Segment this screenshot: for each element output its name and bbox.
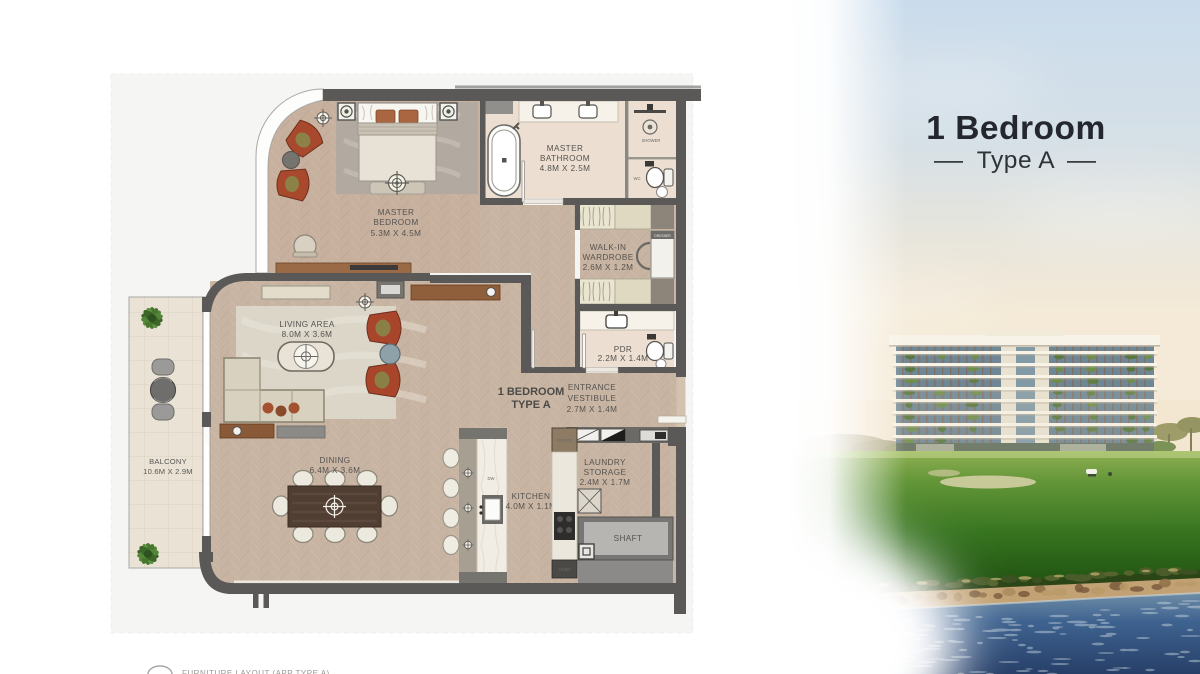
- svg-text:DW: DW: [488, 476, 495, 481]
- svg-text:STORAGE: STORAGE: [584, 468, 627, 477]
- svg-text:2.4M X 1.7M: 2.4M X 1.7M: [580, 478, 631, 487]
- svg-text:BEDROOM: BEDROOM: [373, 218, 418, 227]
- svg-text:4.0M X 1.1M: 4.0M X 1.1M: [506, 502, 557, 511]
- svg-text:4.8M X 2.5M: 4.8M X 2.5M: [540, 164, 591, 173]
- svg-text:WC: WC: [634, 176, 641, 181]
- svg-text:6.4M X 3.6M: 6.4M X 3.6M: [310, 466, 361, 475]
- svg-text:10.6M X 2.9M: 10.6M X 2.9M: [143, 467, 193, 476]
- svg-text:FRIDGE: FRIDGE: [557, 438, 573, 443]
- svg-text:MASTER: MASTER: [547, 144, 584, 153]
- svg-text:1 Bedroom: 1 Bedroom: [926, 110, 1105, 147]
- svg-text:2.7M X 1.4M: 2.7M X 1.4M: [567, 405, 618, 414]
- svg-text:8.0M X 3.6M: 8.0M X 3.6M: [282, 330, 333, 339]
- svg-text:ENTRANCE: ENTRANCE: [568, 383, 616, 392]
- svg-text:VESTIBULE: VESTIBULE: [568, 394, 617, 403]
- svg-text:FURNITURE LAYOUT (APP TYPE A): FURNITURE LAYOUT (APP TYPE A): [182, 669, 330, 674]
- svg-text:LIVING AREA: LIVING AREA: [279, 320, 335, 329]
- svg-text:DRESSER: DRESSER: [654, 234, 671, 238]
- svg-text:KITCHEN: KITCHEN: [512, 492, 551, 501]
- svg-text:TYPE A: TYPE A: [511, 399, 550, 411]
- svg-text:5.3M X 4.5M: 5.3M X 4.5M: [371, 229, 422, 238]
- svg-text:OVEN: OVEN: [559, 567, 571, 572]
- svg-text:WARDROBE: WARDROBE: [582, 253, 633, 262]
- svg-text:2.2M X 1.4M: 2.2M X 1.4M: [598, 354, 649, 363]
- svg-text:2.6M X 1.2M: 2.6M X 1.2M: [583, 263, 634, 272]
- svg-text:DINING: DINING: [319, 456, 350, 465]
- svg-text:SHOWER: SHOWER: [642, 138, 661, 143]
- svg-text:PDR: PDR: [614, 345, 633, 354]
- svg-text:BALCONY: BALCONY: [149, 457, 187, 466]
- svg-text:WALK-IN: WALK-IN: [590, 243, 627, 252]
- svg-text:Type A: Type A: [977, 147, 1056, 174]
- svg-text:1 BEDROOM: 1 BEDROOM: [498, 386, 565, 398]
- svg-text:MASTER: MASTER: [378, 208, 415, 217]
- svg-text:BATHROOM: BATHROOM: [540, 154, 590, 163]
- svg-text:SHAFT: SHAFT: [614, 534, 643, 543]
- svg-text:LAUNDRY: LAUNDRY: [584, 458, 626, 467]
